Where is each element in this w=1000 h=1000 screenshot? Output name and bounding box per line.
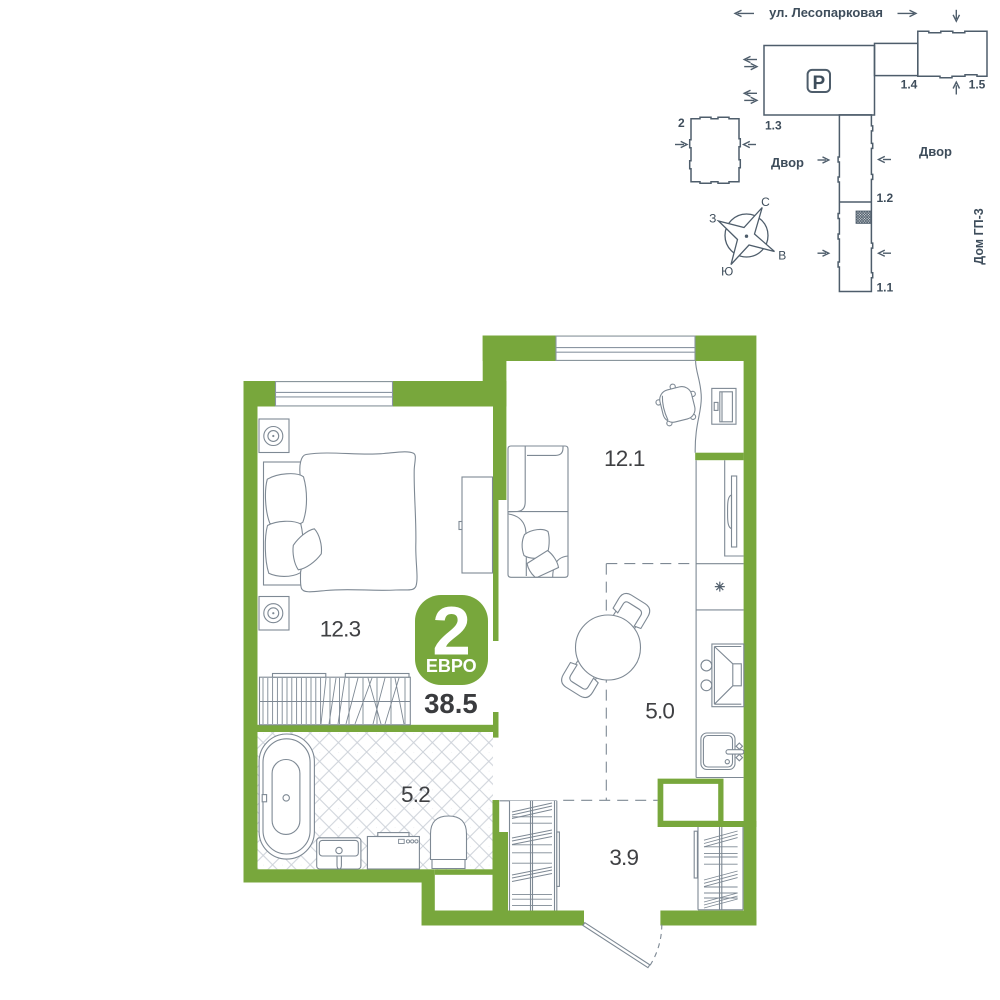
svg-text:3.9: 3.9 [609,845,638,870]
svg-text:5.2: 5.2 [401,782,430,807]
svg-text:З: З [709,212,716,226]
svg-text:Двор: Двор [771,155,804,170]
svg-text:5.0: 5.0 [645,699,674,724]
svg-text:В: В [778,249,786,263]
svg-text:Двор: Двор [919,144,952,159]
svg-text:1.2: 1.2 [877,191,894,205]
svg-text:1.1: 1.1 [877,281,894,295]
svg-text:1.4: 1.4 [901,78,918,92]
svg-text:12.1: 12.1 [604,446,645,471]
svg-text:1.3: 1.3 [765,119,782,133]
svg-text:1.5: 1.5 [969,78,986,92]
svg-text:Дом ГП-3: Дом ГП-3 [972,208,986,264]
svg-text:ул. Лесопарковая: ул. Лесопарковая [769,5,883,20]
svg-text:12.3: 12.3 [320,617,361,642]
svg-text:38.5: 38.5 [424,688,478,719]
svg-text:P: P [812,73,825,94]
svg-text:ЕВРО: ЕВРО [426,656,477,676]
svg-text:Ю: Ю [721,265,733,279]
svg-text:2: 2 [678,116,685,130]
svg-text:С: С [761,195,770,209]
